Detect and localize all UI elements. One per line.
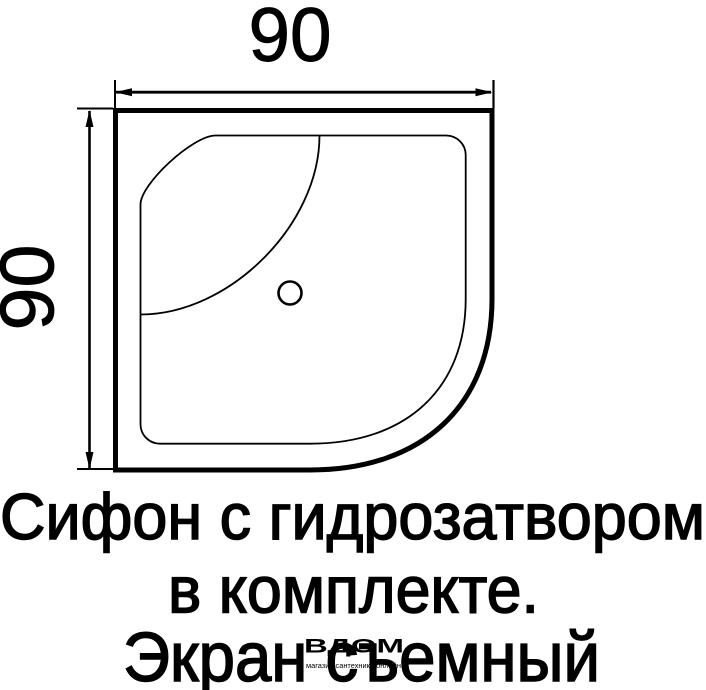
- svg-text:в комплекте.: в комплекте.: [168, 553, 539, 627]
- svg-text:Сифон с гидрозатвором: Сифон с гидрозатвором: [0, 480, 705, 553]
- svg-text:90: 90: [0, 245, 71, 331]
- svg-text:90: 90: [249, 0, 332, 78]
- svg-text:Экран съемный: Экран съемный: [123, 618, 600, 690]
